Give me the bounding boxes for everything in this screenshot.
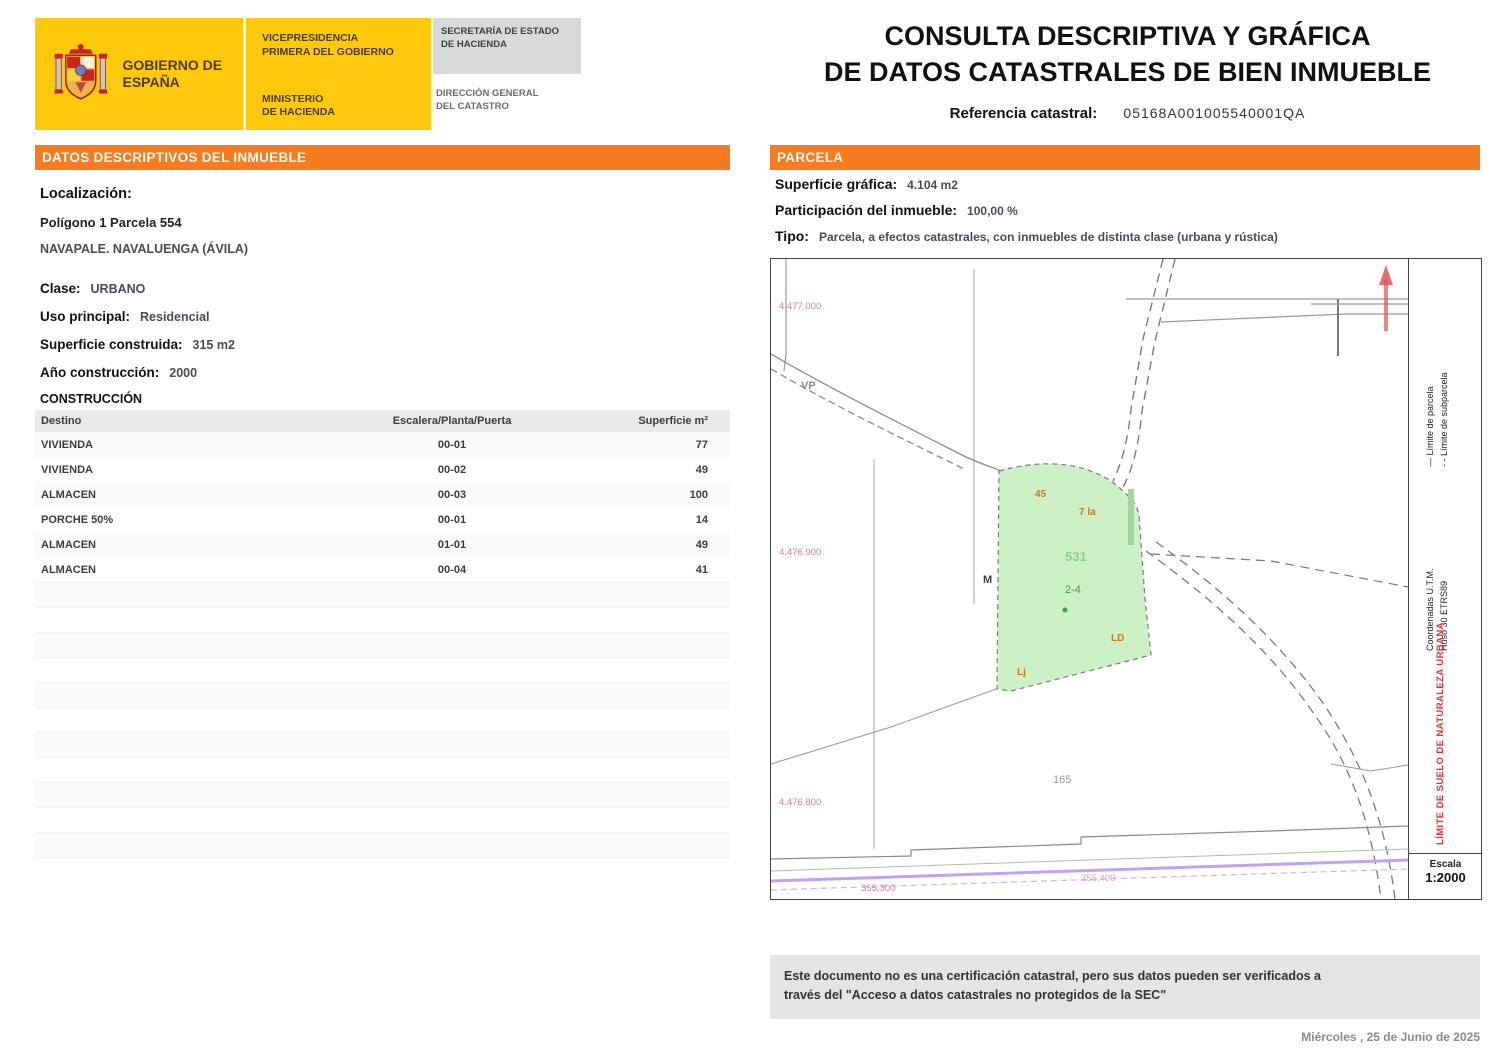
empty-row <box>35 632 730 657</box>
superficie-grafica-value: 4.104 m2 <box>907 178 958 192</box>
left-section-banner: DATOS DESCRIPTIVOS DEL INMUEBLE <box>35 145 730 170</box>
cell-superficie: 49 <box>556 539 730 551</box>
ministry-section: VICEPRESIDENCIA PRIMERA DEL GOBIERNO MIN… <box>246 18 431 130</box>
cell-escalera: 00-04 <box>348 564 557 576</box>
col-header-escalera: Escalera/Planta/Puerta <box>348 415 557 427</box>
cell-superficie: 49 <box>556 464 730 476</box>
cell-superficie: 41 <box>556 564 730 576</box>
tipo-label: Tipo: <box>775 228 809 244</box>
participacion-label: Participación del inmueble: <box>775 202 957 218</box>
coord-x-right-label: 355.400 <box>1081 873 1115 884</box>
cell-escalera: 00-03 <box>348 489 557 501</box>
construction-table: Destino Escalera/Planta/Puerta Superfici… <box>35 410 730 882</box>
neighbor-parcel-label: 165 <box>1053 774 1071 786</box>
direction-label: DIRECCIÓN GENERAL DEL CATASTRO <box>436 88 586 114</box>
coord-y-bot-label: 4.476.800 <box>779 797 821 808</box>
government-name: GOBIERNO DE ESPAÑA <box>122 57 243 92</box>
table-row: ALMACEN 00-04 41 <box>35 557 730 582</box>
clase-field: Clase: URBANO <box>40 281 145 296</box>
cell-destino: ALMACEN <box>35 489 348 501</box>
coord-y-top-label: 4.477.000 <box>779 301 821 312</box>
reference-value: 05168A001005540001QA <box>1123 105 1305 121</box>
superficie-field: Superficie construida: 315 m2 <box>40 337 235 352</box>
localizacion-label: Localización: <box>40 186 132 202</box>
scale-label: Escala <box>1409 859 1482 870</box>
map-legend-sidebar: — Límite de parcela - - Límite de subpar… <box>1408 259 1481 899</box>
ministry-label: MINISTERIO DE HACIENDA <box>262 93 421 120</box>
empty-row <box>35 832 730 857</box>
cell-superficie: 100 <box>556 489 730 501</box>
secretary-box: SECRETARÍA DE ESTADO DE HACIENDA <box>433 18 581 74</box>
title-line-2: DE DATOS CATASTRALES DE BIEN INMUEBLE <box>775 54 1480 90</box>
empty-row <box>35 707 730 732</box>
scale-box: Escala 1:2000 <box>1409 853 1482 899</box>
parcel-sub-label: 2-4 <box>1065 584 1081 596</box>
secretary-label: SECRETARÍA DE ESTADO DE HACIENDA <box>441 26 573 52</box>
uso-value: Residencial <box>140 310 209 324</box>
document-title: CONSULTA DESCRIPTIVA Y GRÁFICA DE DATOS … <box>775 18 1480 122</box>
table-row: PORCHE 50% 00-01 14 <box>35 507 730 532</box>
localizacion-line2: NAVAPALE. NAVALUENGA (ÁVILA) <box>40 242 248 256</box>
legend-line-2: - - Límite de subparcela <box>1439 372 1449 467</box>
empty-row <box>35 732 730 757</box>
legend-red-note: LÍMITE DE SUELO DE NATURALEZA URBANA <box>1435 622 1446 845</box>
col-header-destino: Destino <box>35 415 348 427</box>
scale-value: 1:2000 <box>1409 870 1482 885</box>
coord-y-mid-label: 4.476.900 <box>779 547 821 558</box>
cadastral-map[interactable]: 4.477.000 4.476.900 4.476.800 355.300 35… <box>770 258 1482 900</box>
cell-destino: ALMACEN <box>35 539 348 551</box>
cell-destino: ALMACEN <box>35 564 348 576</box>
empty-row <box>35 682 730 707</box>
clase-label: Clase: <box>40 281 81 296</box>
government-logo-block: GOBIERNO DE ESPAÑA VICEPRESIDENCIA PRIME… <box>35 18 431 130</box>
disclaimer-line-1: Este documento no es una certificación c… <box>784 967 1466 986</box>
tipo-value: Parcela, a efectos catastrales, con inmu… <box>819 230 1278 244</box>
cell-superficie: 14 <box>556 514 730 526</box>
empty-row <box>35 607 730 632</box>
document-date: Miércoles , 25 de Junio de 2025 <box>770 1030 1480 1044</box>
construction-label-3: LD <box>1111 633 1124 644</box>
superficie-grafica-label: Superficie gráfica: <box>775 176 897 192</box>
construction-label-4: Lj <box>1017 667 1026 678</box>
empty-row <box>35 582 730 607</box>
disclaimer-box: Este documento no es una certificación c… <box>770 955 1480 1019</box>
coat-of-arms-section: GOBIERNO DE ESPAÑA <box>35 18 243 130</box>
tipo-field: Tipo: Parcela, a efectos catastrales, co… <box>775 228 1278 244</box>
participacion-value: 100,00 % <box>967 204 1018 218</box>
uso-field: Uso principal: Residencial <box>40 309 210 324</box>
table-header-row: Destino Escalera/Planta/Puerta Superfici… <box>35 410 730 432</box>
construction-label-1: 45 <box>1035 489 1047 500</box>
coord-x-left-label: 355.300 <box>861 883 895 894</box>
table-row: VIVIENDA 00-01 77 <box>35 432 730 457</box>
cadastral-reference: Referencia catastral: 05168A001005540001… <box>775 105 1480 122</box>
superficie-grafica-field: Superficie gráfica: 4.104 m2 <box>775 176 958 192</box>
spain-coat-of-arms-icon <box>53 31 108 117</box>
participacion-field: Participación del inmueble: 100,00 % <box>775 202 1018 218</box>
cell-escalera: 00-02 <box>348 464 557 476</box>
title-line-1: CONSULTA DESCRIPTIVA Y GRÁFICA <box>775 18 1480 54</box>
superficie-label: Superficie construida: <box>40 337 183 352</box>
reference-label: Referencia catastral: <box>950 105 1098 122</box>
cell-escalera: 01-01 <box>348 539 557 551</box>
table-row: ALMACEN 00-03 100 <box>35 482 730 507</box>
vicepresidency-label: VICEPRESIDENCIA PRIMERA DEL GOBIERNO <box>262 32 421 59</box>
empty-row <box>35 807 730 832</box>
table-row: ALMACEN 01-01 49 <box>35 532 730 557</box>
clase-value: URBANO <box>91 282 146 296</box>
road-label: VP <box>801 380 816 392</box>
empty-row <box>35 857 730 882</box>
disclaimer-line-2: través del "Acceso a datos catastrales n… <box>784 986 1466 1005</box>
parcel-number-label: 531 <box>1065 549 1087 564</box>
legend-line-3: Coordenadas U.T.M. <box>1425 568 1435 651</box>
cell-escalera: 00-01 <box>348 514 557 526</box>
construccion-title: CONSTRUCCIÓN <box>40 392 142 406</box>
parcel-section-banner: PARCELA <box>770 145 1480 170</box>
table-row: VIVIENDA 00-02 49 <box>35 457 730 482</box>
empty-row <box>35 782 730 807</box>
cell-superficie: 77 <box>556 439 730 451</box>
map-drawing: 4.477.000 4.476.900 4.476.800 355.300 35… <box>771 259 1408 899</box>
uso-label: Uso principal: <box>40 309 130 324</box>
col-header-superficie: Superficie m² <box>556 415 730 427</box>
empty-row <box>35 657 730 682</box>
anio-label: Año construcción: <box>40 365 159 380</box>
construction-label-2: 7 la <box>1079 507 1096 518</box>
edge-label: M <box>983 574 992 586</box>
cell-destino: VIVIENDA <box>35 464 348 476</box>
legend-line-1: — Límite de parcela <box>1425 386 1435 467</box>
empty-row <box>35 757 730 782</box>
localizacion-line1: Polígono 1 Parcela 554 <box>40 215 182 230</box>
anio-field: Año construcción: 2000 <box>40 365 197 380</box>
anio-value: 2000 <box>169 366 197 380</box>
cell-escalera: 00-01 <box>348 439 557 451</box>
superficie-value: 315 m2 <box>193 338 235 352</box>
cell-destino: VIVIENDA <box>35 439 348 451</box>
cell-destino: PORCHE 50% <box>35 514 348 526</box>
